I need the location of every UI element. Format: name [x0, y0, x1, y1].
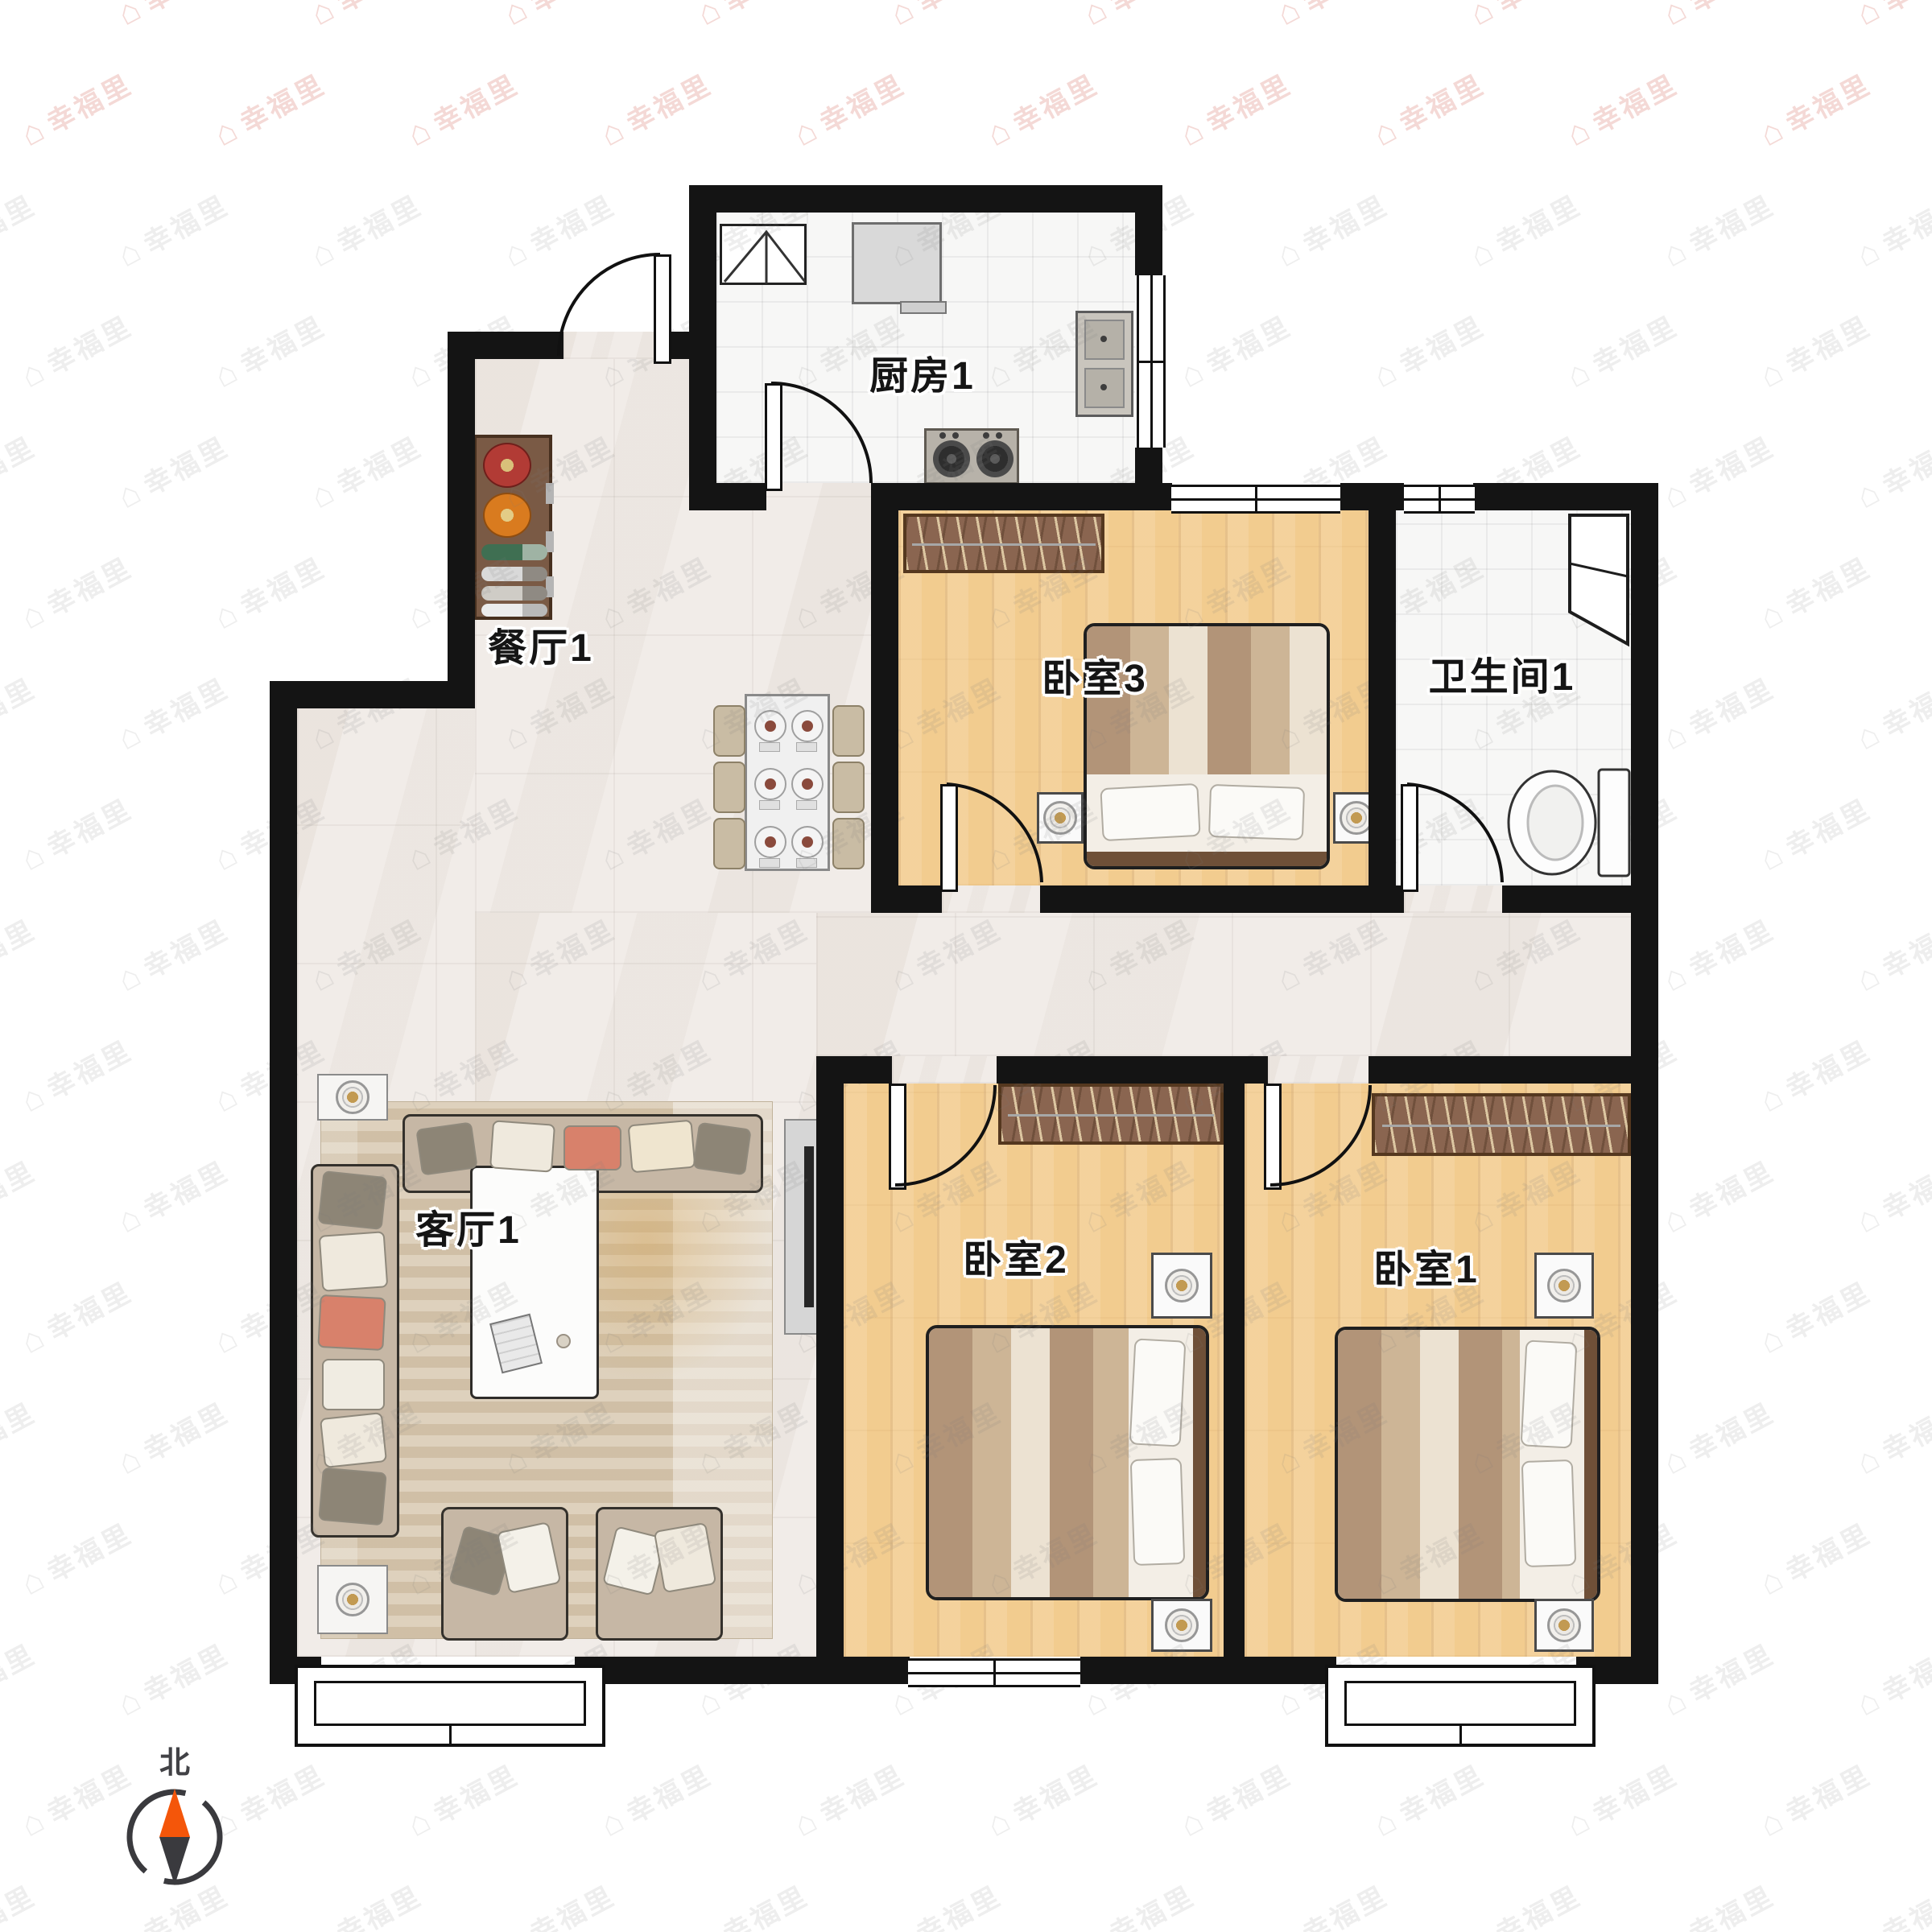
watermark-tile: ⌂幸福里 [0, 425, 42, 516]
watermark-tile: ⌂幸福里 [0, 667, 42, 758]
watermark-tile: ⌂幸福里 [1656, 425, 1781, 516]
kitchen-sink [1075, 311, 1133, 417]
watermark-house-icon: ⌂ [14, 350, 53, 394]
watermark-house-icon: ⌂ [1174, 1799, 1212, 1843]
watermark-tile: ⌂幸福里 [1173, 304, 1298, 395]
watermark-house-icon: ⌂ [884, 0, 923, 32]
watermark-house-icon: ⌂ [111, 1678, 150, 1723]
room-label-bedroom1: 卧室1 [1373, 1237, 1480, 1294]
room-label-living: 客厅1 [415, 1198, 522, 1254]
watermark-tile: ⌂幸福里 [497, 184, 621, 275]
floor-plan: 厨房1 餐厅1 卧室3 卫生间1 客厅1 卧室2 卧室1 北 ⌂幸福里⌂幸福里⌂… [0, 0, 1932, 1932]
bedroom2-window [908, 1658, 1080, 1687]
wall [1368, 1056, 1631, 1084]
watermark-tile: ⌂幸福里 [207, 304, 332, 395]
watermark-tile: ⌂幸福里 [14, 1512, 138, 1603]
watermark-house-icon: ⌂ [14, 1316, 53, 1360]
watermark-house-icon: ⌂ [111, 229, 150, 274]
watermark-house-icon: ⌂ [691, 1678, 729, 1723]
watermark-tile: ⌂幸福里 [1076, 0, 1201, 33]
watermark-tile: ⌂幸福里 [883, 1874, 1008, 1932]
watermark-tile: ⌂幸福里 [883, 0, 1008, 33]
tv [804, 1146, 814, 1307]
watermark-house-icon: ⌂ [208, 1558, 246, 1602]
watermark-house-icon: ⌂ [1560, 350, 1599, 394]
watermark-tile: ⌂幸福里 [1752, 1029, 1877, 1120]
watermark-house-icon: ⌂ [1850, 471, 1889, 515]
watermark-house-icon: ⌂ [14, 1558, 53, 1602]
wall [270, 681, 475, 708]
watermark-tile: ⌂幸福里 [207, 546, 332, 637]
wall [575, 1657, 910, 1684]
watermark-house-icon: ⌂ [1270, 1920, 1309, 1932]
wall [816, 1056, 844, 1684]
wall [1631, 483, 1658, 1684]
watermark-house-icon: ⌂ [1174, 109, 1212, 153]
watermark-tile: ⌂幸福里 [110, 0, 235, 33]
watermark-house-icon: ⌂ [208, 109, 246, 153]
watermark-house-icon: ⌂ [497, 0, 536, 32]
decanter-orange [483, 493, 531, 538]
watermark-tile: ⌂幸福里 [0, 908, 42, 999]
watermark-house-icon: ⌂ [1657, 229, 1695, 274]
watermark-house-icon: ⌂ [304, 0, 343, 32]
watermark-tile: ⌂幸福里 [1752, 63, 1877, 154]
watermark-tile: ⌂幸福里 [1752, 787, 1877, 878]
watermark-tile: ⌂幸福里 [1752, 1270, 1877, 1361]
watermark-house-icon: ⌂ [1753, 1558, 1792, 1602]
watermark-tile: ⌂幸福里 [1656, 667, 1781, 758]
watermark-house-icon: ⌂ [691, 0, 729, 32]
watermark-house-icon: ⌂ [1753, 1316, 1792, 1360]
kitchen-cabinet [852, 222, 942, 304]
watermark-tile: ⌂幸福里 [303, 0, 428, 33]
book [489, 1314, 543, 1374]
watermark-house-icon: ⌂ [208, 592, 246, 636]
wall [1368, 483, 1396, 885]
watermark-tile: ⌂幸福里 [593, 63, 718, 154]
watermark-tile: ⌂幸福里 [110, 1391, 235, 1482]
watermark-tile: ⌂幸福里 [1849, 184, 1932, 275]
nightstand [1037, 792, 1084, 844]
watermark-house-icon: ⌂ [208, 350, 246, 394]
watermark-tile: ⌂幸福里 [207, 1753, 332, 1844]
watermark-house-icon: ⌂ [1560, 1799, 1599, 1843]
watermark-house-icon: ⌂ [787, 1799, 826, 1843]
watermark-tile: ⌂幸福里 [14, 63, 138, 154]
watermark-house-icon: ⌂ [1657, 0, 1695, 32]
watermark-tile: ⌂幸福里 [1463, 0, 1587, 33]
watermark-tile: ⌂幸福里 [1849, 1150, 1932, 1241]
wall [871, 885, 942, 913]
wall [1080, 1657, 1336, 1684]
room-label-bathroom: 卫生间1 [1429, 645, 1576, 701]
watermark-house-icon: ⌂ [1560, 109, 1599, 153]
watermark-house-icon: ⌂ [980, 1799, 1019, 1843]
watermark-tile: ⌂幸福里 [1849, 908, 1932, 999]
nightstand [1151, 1253, 1212, 1319]
watermark-house-icon: ⌂ [1850, 1437, 1889, 1481]
watermark-tile: ⌂幸福里 [980, 1753, 1104, 1844]
nightstand [1151, 1599, 1212, 1652]
watermark-tile: ⌂幸福里 [690, 0, 815, 33]
watermark-house-icon: ⌂ [1850, 712, 1889, 757]
wall [1224, 1056, 1245, 1684]
watermark-house-icon: ⌂ [1657, 1195, 1695, 1240]
watermark-house-icon: ⌂ [1270, 229, 1309, 274]
watermark-tile: ⌂幸福里 [1752, 304, 1877, 395]
watermark-tile: ⌂幸福里 [14, 1753, 138, 1844]
watermark-tile: ⌂幸福里 [1656, 0, 1781, 33]
watermark-tile: ⌂幸福里 [14, 1270, 138, 1361]
watermark-tile: ⌂幸福里 [1463, 1874, 1587, 1932]
watermark-house-icon: ⌂ [208, 833, 246, 877]
wardrobe [998, 1084, 1224, 1145]
wardrobe [1372, 1093, 1631, 1156]
watermark-house-icon: ⌂ [304, 1920, 343, 1932]
watermark-house-icon: ⌂ [1753, 592, 1792, 636]
watermark-house-icon: ⌂ [1850, 229, 1889, 274]
wall [270, 681, 297, 1684]
watermark-tile: ⌂幸福里 [1173, 63, 1298, 154]
watermark-tile: ⌂幸福里 [1656, 1874, 1781, 1932]
wardrobe [903, 514, 1104, 573]
watermark-house-icon: ⌂ [1657, 1437, 1695, 1481]
watermark-house-icon: ⌂ [111, 1195, 150, 1240]
watermark-house-icon: ⌂ [1463, 1920, 1502, 1932]
watermark-house-icon: ⌂ [401, 109, 440, 153]
decanter-red [483, 443, 531, 488]
watermark-tile: ⌂幸福里 [1366, 1753, 1491, 1844]
watermark-tile: ⌂幸福里 [0, 0, 42, 33]
room-label-kitchen: 厨房1 [869, 344, 976, 400]
watermark-tile: ⌂幸福里 [1076, 1874, 1201, 1932]
watermark-house-icon: ⌂ [1463, 0, 1502, 32]
side-table [317, 1565, 388, 1634]
watermark-tile: ⌂幸福里 [1752, 546, 1877, 637]
kitchen-cabinet-tray [900, 301, 947, 314]
watermark-tile: ⌂幸福里 [110, 1633, 235, 1724]
watermark-house-icon: ⌂ [1174, 350, 1212, 394]
watermark-house-icon: ⌂ [14, 109, 53, 153]
watermark-house-icon: ⌂ [208, 1316, 246, 1360]
watermark-tile: ⌂幸福里 [110, 425, 235, 516]
watermark-house-icon: ⌂ [111, 471, 150, 515]
room-label-bedroom2: 卧室2 [963, 1228, 1069, 1284]
watermark-tile: ⌂幸福里 [1849, 425, 1932, 516]
watermark-tile: ⌂幸福里 [1656, 1391, 1781, 1482]
watermark-house-icon: ⌂ [208, 1075, 246, 1119]
watermark-tile: ⌂幸福里 [1849, 0, 1932, 33]
watermark-tile: ⌂幸福里 [110, 667, 235, 758]
watermark-tile: ⌂幸福里 [303, 184, 428, 275]
threshold [1404, 885, 1502, 913]
watermark-house-icon: ⌂ [1077, 1920, 1116, 1932]
room-label-dining: 餐厅1 [488, 616, 594, 672]
watermark-house-icon: ⌂ [304, 229, 343, 274]
watermark-house-icon: ⌂ [111, 1437, 150, 1481]
kitchen-window [1137, 275, 1166, 448]
watermark-house-icon: ⌂ [1367, 350, 1406, 394]
entry-door [654, 254, 671, 364]
cup [556, 1334, 571, 1348]
bedroom3-window [1171, 485, 1340, 514]
wall [871, 510, 898, 885]
threshold [1268, 1056, 1368, 1084]
watermark-tile: ⌂幸福里 [110, 908, 235, 999]
watermark-tile: ⌂幸福里 [497, 0, 621, 33]
watermark-house-icon: ⌂ [304, 471, 343, 515]
watermark-house-icon: ⌂ [1753, 1075, 1792, 1119]
watermark-tile: ⌂幸福里 [110, 1150, 235, 1241]
threshold [892, 1056, 997, 1084]
watermark-tile: ⌂幸福里 [1752, 1512, 1877, 1603]
bedroom3-door [940, 784, 958, 892]
watermark-house-icon: ⌂ [1753, 350, 1792, 394]
bedroom1-bay-window [1325, 1665, 1596, 1747]
watermark-house-icon: ⌂ [497, 229, 536, 274]
bedroom1-door [1264, 1084, 1282, 1190]
watermark-house-icon: ⌂ [1850, 1920, 1889, 1932]
watermark-tile: ⌂幸福里 [1559, 63, 1684, 154]
wall [871, 483, 1162, 510]
wine-bottle-green [481, 544, 547, 560]
watermark-tile: ⌂幸福里 [1849, 1633, 1932, 1724]
side-table [317, 1074, 388, 1121]
watermark-house-icon: ⌂ [401, 350, 440, 394]
watermark-house-icon: ⌂ [401, 592, 440, 636]
wine-bottle [481, 586, 547, 601]
watermark-house-icon: ⌂ [1077, 1678, 1116, 1723]
watermark-house-icon: ⌂ [1270, 0, 1309, 32]
watermark-tile: ⌂幸福里 [207, 63, 332, 154]
watermark-house-icon: ⌂ [1367, 109, 1406, 153]
watermark-house-icon: ⌂ [111, 954, 150, 998]
watermark-tile: ⌂幸福里 [1656, 1633, 1781, 1724]
watermark-house-icon: ⌂ [1270, 1678, 1309, 1723]
watermark-tile: ⌂幸福里 [1656, 184, 1781, 275]
watermark-tile: ⌂幸福里 [14, 1029, 138, 1120]
watermark-tile: ⌂幸福里 [497, 1874, 621, 1932]
watermark-house-icon: ⌂ [14, 1799, 53, 1843]
watermark-house-icon: ⌂ [1850, 1195, 1889, 1240]
cabinet-knob [546, 483, 554, 504]
watermark-house-icon: ⌂ [1463, 229, 1502, 274]
watermark-tile: ⌂幸福里 [1656, 908, 1781, 999]
bathroom-window [1404, 485, 1475, 514]
compass-north-needle [159, 1789, 190, 1837]
watermark-tile: ⌂幸福里 [1269, 0, 1394, 33]
watermark-tile: ⌂幸福里 [980, 63, 1104, 154]
wall [448, 332, 475, 708]
watermark-house-icon: ⌂ [14, 833, 53, 877]
bathroom-door [1401, 784, 1418, 892]
watermark-tile: ⌂幸福里 [14, 546, 138, 637]
watermark-house-icon: ⌂ [787, 109, 826, 153]
watermark-tile: ⌂幸福里 [400, 1753, 525, 1844]
watermark-tile: ⌂幸福里 [690, 1874, 815, 1932]
watermark-tile: ⌂幸福里 [1849, 667, 1932, 758]
watermark-tile: ⌂幸福里 [1849, 1874, 1932, 1932]
corridor-floor [816, 913, 1631, 1056]
watermark-tile: ⌂幸福里 [786, 63, 911, 154]
bedroom2-door [889, 1084, 906, 1190]
kitchen-door [765, 383, 782, 491]
watermark-tile: ⌂幸福里 [786, 1753, 911, 1844]
watermark-tile: ⌂幸福里 [14, 787, 138, 878]
watermark-house-icon: ⌂ [1850, 0, 1889, 32]
wall [1040, 885, 1404, 913]
nightstand [1534, 1599, 1594, 1652]
watermark-house-icon: ⌂ [1657, 1678, 1695, 1723]
watermark-house-icon: ⌂ [1657, 954, 1695, 998]
wine-bottle [481, 604, 547, 617]
watermark-house-icon: ⌂ [111, 712, 150, 757]
watermark-house-icon: ⌂ [401, 1799, 440, 1843]
watermark-tile: ⌂幸福里 [1173, 1753, 1298, 1844]
watermark-house-icon: ⌂ [1657, 1920, 1695, 1932]
watermark-tile: ⌂幸福里 [110, 184, 235, 275]
wall [689, 483, 766, 510]
watermark-house-icon: ⌂ [1753, 833, 1792, 877]
watermark-house-icon: ⌂ [1850, 1678, 1889, 1723]
watermark-house-icon: ⌂ [111, 0, 150, 32]
watermark-tile: ⌂幸福里 [400, 63, 525, 154]
watermark-tile: ⌂幸福里 [0, 184, 42, 275]
nightstand [1534, 1253, 1594, 1319]
watermark-house-icon: ⌂ [1753, 1799, 1792, 1843]
watermark-house-icon: ⌂ [980, 109, 1019, 153]
watermark-tile: ⌂幸福里 [1269, 1874, 1394, 1932]
watermark-house-icon: ⌂ [111, 1920, 150, 1932]
watermark-tile: ⌂幸福里 [1849, 1391, 1932, 1482]
living-bay-window [295, 1665, 605, 1747]
compass-south-needle [159, 1837, 190, 1885]
stove [924, 428, 1019, 485]
watermark-tile: ⌂幸福里 [0, 1150, 42, 1241]
watermark-tile: ⌂幸福里 [1656, 1150, 1781, 1241]
watermark-tile: ⌂幸福里 [0, 1633, 42, 1724]
watermark-house-icon: ⌂ [594, 109, 633, 153]
watermark-house-icon: ⌂ [1657, 712, 1695, 757]
watermark-tile: ⌂幸福里 [593, 1753, 718, 1844]
watermark-tile: ⌂幸福里 [0, 1391, 42, 1482]
fridge [720, 224, 807, 285]
watermark-house-icon: ⌂ [691, 1920, 729, 1932]
room-label-bedroom3: 卧室3 [1042, 646, 1148, 703]
watermark-tile: ⌂幸福里 [1366, 304, 1491, 395]
watermark-tile: ⌂幸福里 [1559, 304, 1684, 395]
watermark-tile: ⌂幸福里 [14, 304, 138, 395]
watermark-tile: ⌂幸福里 [1366, 63, 1491, 154]
wall [670, 332, 716, 359]
watermark-tile: ⌂幸福里 [1269, 184, 1394, 275]
watermark-tile: ⌂幸福里 [1752, 1753, 1877, 1844]
watermark-house-icon: ⌂ [14, 1075, 53, 1119]
watermark-house-icon: ⌂ [1077, 0, 1116, 32]
watermark-house-icon: ⌂ [1850, 954, 1889, 998]
wall [1502, 885, 1658, 913]
watermark-house-icon: ⌂ [208, 1799, 246, 1843]
watermark-house-icon: ⌂ [884, 1920, 923, 1932]
watermark-tile: ⌂幸福里 [1559, 1753, 1684, 1844]
watermark-house-icon: ⌂ [1367, 1799, 1406, 1843]
watermark-tile: ⌂幸福里 [0, 1874, 42, 1932]
watermark-house-icon: ⌂ [14, 592, 53, 636]
watermark-house-icon: ⌂ [1753, 109, 1792, 153]
wall [689, 185, 1162, 213]
wine-bottle [481, 567, 547, 581]
watermark-house-icon: ⌂ [594, 1799, 633, 1843]
watermark-tile: ⌂幸福里 [303, 1874, 428, 1932]
watermark-house-icon: ⌂ [497, 1920, 536, 1932]
watermark-house-icon: ⌂ [1657, 471, 1695, 515]
watermark-tile: ⌂幸福里 [1463, 184, 1587, 275]
compass-north-label: 北 [159, 1738, 190, 1782]
watermark-tile: ⌂幸福里 [110, 1874, 235, 1932]
wall [1135, 185, 1162, 275]
compass-icon [111, 1773, 238, 1901]
watermark-tile: ⌂幸福里 [303, 425, 428, 516]
